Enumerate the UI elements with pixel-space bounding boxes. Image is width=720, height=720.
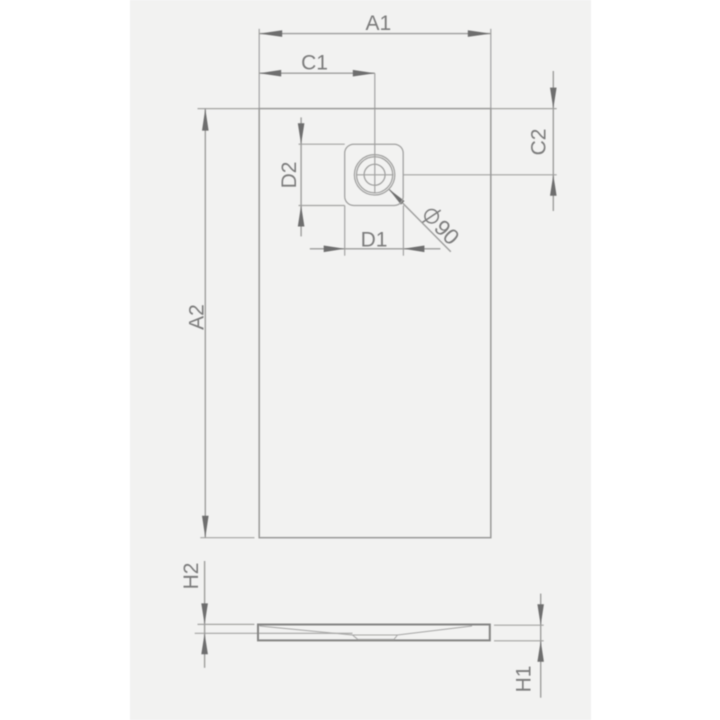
svg-text:H2: H2 [180,563,203,590]
svg-text:D2: D2 [278,162,301,189]
svg-text:C2: C2 [528,129,551,156]
svg-text:C1: C1 [301,52,328,75]
svg-text:A2: A2 [186,304,209,330]
svg-text:A1: A1 [365,12,391,35]
svg-text:H1: H1 [513,666,536,693]
svg-text:D1: D1 [361,229,388,252]
